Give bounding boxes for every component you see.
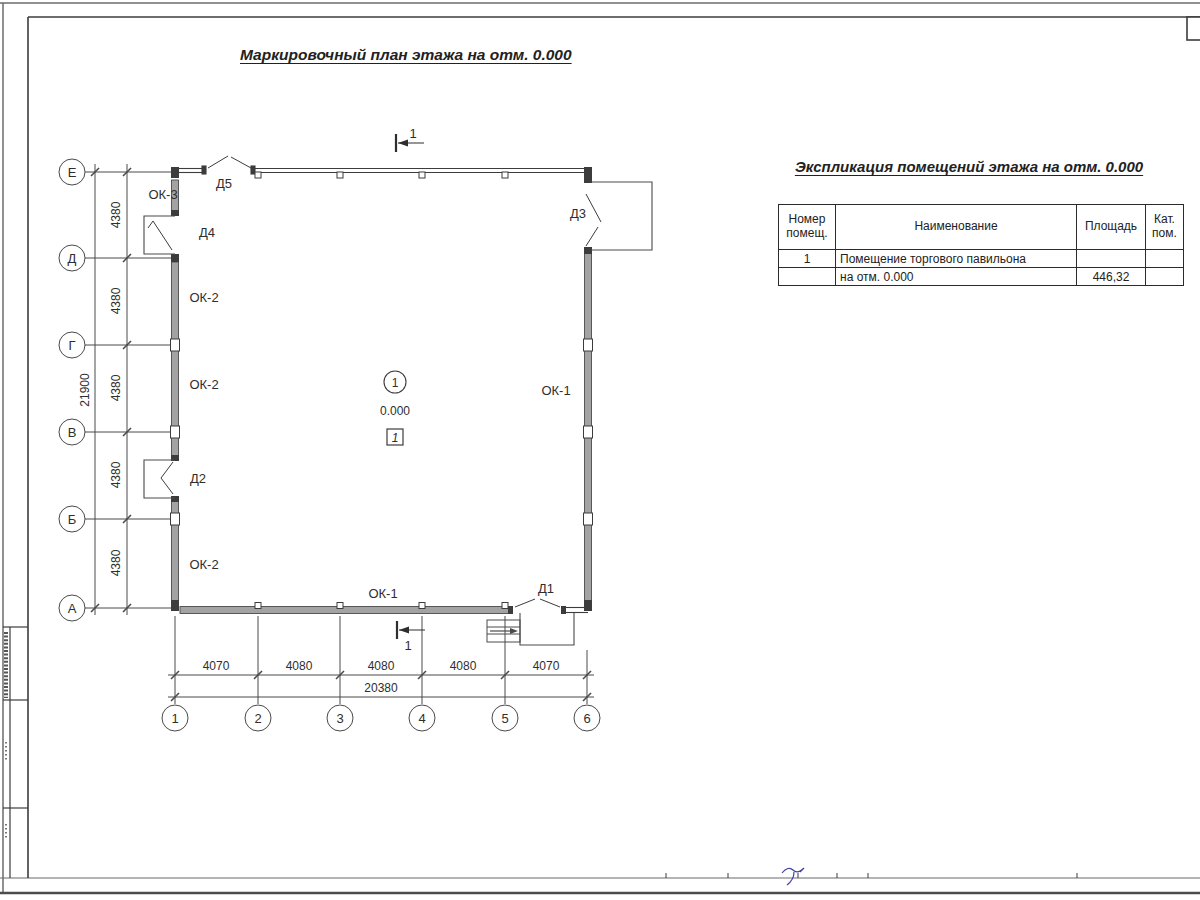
room-level: 0.000	[380, 404, 410, 418]
window-label-ok2: ОК-2	[189, 377, 218, 392]
cell-category	[1146, 268, 1184, 286]
dim-label: 4380	[109, 374, 123, 401]
drawing-sheet: Е Д Г В Б А 4380 4380 4380 4380 4380 2	[0, 0, 1200, 900]
explication-title: Экспликация помещений этажа на отм. 0.00…	[778, 158, 1160, 175]
dim-total-label: 20380	[364, 681, 398, 695]
axis-row-label: Г	[68, 338, 75, 353]
col-header-category: Кат. пом.	[1146, 205, 1184, 250]
room-mark: 1 0.000 1	[380, 371, 410, 445]
door-label-d4: Д4	[199, 225, 215, 240]
cell-category	[1146, 250, 1184, 268]
door-label-d5: Д5	[216, 176, 232, 191]
grid-axis-numbers: 1 2 3 4 5 6	[171, 711, 590, 726]
plan-labels: ОК-3 Д5 Д4 ОК-2 ОК-2 Д2 ОК-2 ОК-1 ОК-1 Д…	[148, 176, 586, 601]
floor-plan-drawing: Е Д Г В Б А 4380 4380 4380 4380 4380 2	[0, 0, 1200, 900]
table-row: на отм. 0.000 446,32	[779, 268, 1184, 286]
grid-axis-letters: Е Д Г В Б А	[68, 165, 77, 616]
window-label-ok2: ОК-2	[189, 290, 218, 305]
cell-area: 446,32	[1077, 268, 1146, 286]
section-mark-bottom: 1	[397, 621, 425, 653]
dim-label: 4380	[109, 287, 123, 314]
title-block-ticks	[666, 873, 1077, 878]
col-header-name: Наименование	[836, 205, 1077, 250]
door-label-d2: Д2	[190, 471, 206, 486]
dim-label: 4070	[533, 659, 560, 673]
axis-col-label: 3	[336, 711, 343, 726]
window-label-ok1: ОК-1	[368, 586, 397, 601]
wall-top	[175, 166, 588, 174]
inner-frame	[28, 17, 1200, 878]
dim-label: 4380	[109, 461, 123, 488]
axis-col-label: 1	[171, 711, 178, 726]
cell-number	[779, 268, 836, 286]
cell-number: 1	[779, 250, 836, 268]
wall-right	[584, 167, 593, 611]
axis-row-label: В	[68, 425, 77, 440]
col-header-area: Площадь	[1077, 205, 1146, 250]
col-header-category-line1: Кат.	[1154, 212, 1175, 226]
axis-col-label: 4	[418, 711, 425, 726]
axis-col-label: 2	[254, 711, 261, 726]
section-label: 1	[404, 638, 411, 653]
grid-axes-bottom	[162, 616, 600, 731]
wall-left	[171, 167, 180, 611]
col-header-number-line1: Номер	[789, 212, 826, 226]
col-header-category-line2: пом.	[1152, 226, 1177, 240]
section-label: 1	[409, 126, 416, 141]
cell-name: на отм. 0.000	[836, 268, 1077, 286]
axis-col-label: 6	[583, 711, 590, 726]
axis-row-label: Б	[68, 512, 77, 527]
signature-scribble	[782, 868, 804, 885]
explication-block: Экспликация помещений этажа на отм. 0.00…	[778, 158, 1160, 286]
entrance-steps	[487, 620, 520, 642]
section-mark-top: 1	[396, 126, 424, 152]
dim-label: 4080	[450, 659, 477, 673]
explication-table: Номер помещ. Наименование Площадь Кат. п…	[778, 204, 1184, 286]
axis-row-label: Д	[68, 251, 77, 266]
stamp-side-column	[3, 627, 28, 878]
axis-col-label: 5	[501, 711, 508, 726]
table-row: 1 Помещение торгового павильона	[779, 250, 1184, 268]
door-label-d1: Д1	[538, 581, 554, 596]
dim-label: 4070	[203, 659, 230, 673]
sheet-frame	[0, 3, 1200, 894]
axis-row-label: Е	[68, 165, 77, 180]
cell-name: Помещение торгового павильона	[836, 250, 1077, 268]
col-header-number: Номер помещ.	[779, 205, 836, 250]
cell-area	[1077, 250, 1146, 268]
axis-row-label: А	[68, 601, 77, 616]
door-label-d3: Д3	[570, 206, 586, 221]
col-header-number-line2: помещ.	[786, 226, 827, 240]
dim-label: 4380	[109, 201, 123, 228]
dim-label: 4080	[286, 659, 313, 673]
plan-title: Маркировочный план этажа на отм. 0.000	[240, 46, 560, 64]
dim-label: 4080	[368, 659, 395, 673]
window-label-ok1: ОК-1	[541, 383, 570, 398]
room-zone: 1	[392, 431, 399, 445]
dim-label: 4380	[109, 549, 123, 576]
window-label-ok2: ОК-2	[189, 557, 218, 572]
window-label-ok3: ОК-3	[148, 187, 177, 202]
dim-total-label: 21900	[78, 373, 92, 407]
room-number: 1	[392, 376, 399, 390]
wall-bottom	[180, 603, 588, 615]
